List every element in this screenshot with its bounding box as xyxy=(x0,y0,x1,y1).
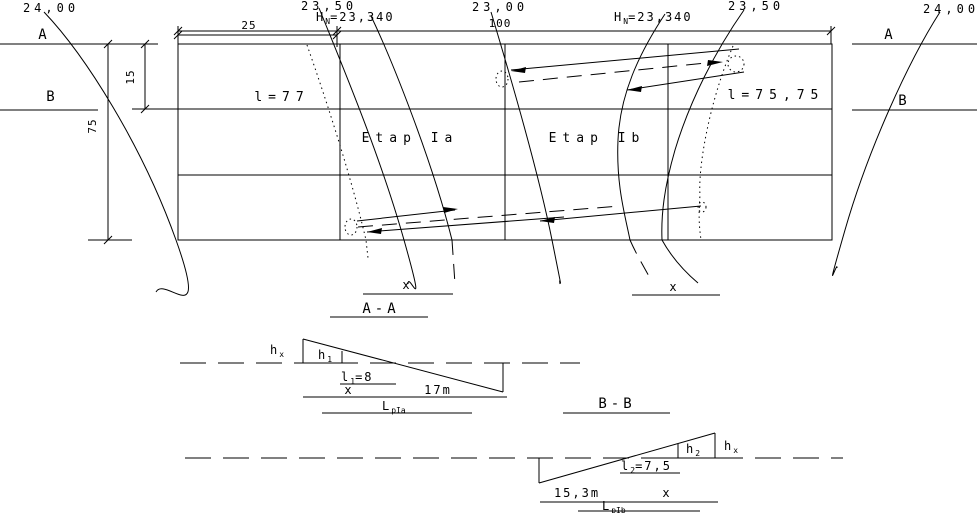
label-l2-bb: l2=7,5 xyxy=(621,459,672,475)
label-hx-aa: hx xyxy=(270,343,284,359)
label-hx-bb: hx xyxy=(724,439,738,455)
stage-label-etap-ib: Etap Ib xyxy=(549,131,646,146)
cell-label-l7575: l=75,75 xyxy=(728,88,825,103)
contour-label-2300: 23,00 xyxy=(472,0,528,14)
excavation-arrows-bottom xyxy=(345,202,706,235)
contour-label-24-far-right: 24,00 xyxy=(923,2,977,16)
label-h2-bb: h2 xyxy=(686,442,700,458)
section-marker-a-right: A xyxy=(884,27,893,43)
label-17m-aa: 17m xyxy=(424,383,452,397)
axis-x-right: x xyxy=(669,280,678,294)
contour-label-24-far-left: 24,00 xyxy=(23,1,79,15)
label-153m-bb: 15,3m xyxy=(554,486,600,500)
section-title-aa: A-A xyxy=(362,301,399,317)
cell-label-l77: l=77 xyxy=(254,90,309,105)
section-title-bb: B-B xyxy=(598,396,635,412)
section-bb: B-B h2 hx l2=7,5 15,3m x LpIb xyxy=(185,396,843,513)
label-h1-aa: h1 xyxy=(318,348,332,364)
label-x-bb: x xyxy=(662,486,671,500)
section-marker-a-left: A xyxy=(38,27,47,43)
cad-drawing: 24,00 23,50 HN=23,340 23,00 HN=23,340 23… xyxy=(0,0,977,513)
level-label-right: HN=23,340 xyxy=(614,10,693,26)
section-cut-lines xyxy=(0,44,977,110)
dim-label-100: 100 xyxy=(489,17,512,30)
contour-label-2350-right: 23,50 xyxy=(728,0,784,13)
stage-label-etap-ia: Etap Ia xyxy=(362,131,459,146)
dim-label-15: 15 xyxy=(124,69,137,84)
label-x-aa: x xyxy=(344,383,353,397)
section-aa: hx h1 l1=8 x 17m LpIa xyxy=(180,339,580,415)
label-lpib-bb: LpIb xyxy=(602,499,626,513)
dimension-lines xyxy=(88,26,835,244)
label-lpia-aa: LpIa xyxy=(382,399,406,415)
dim-label-25: 25 xyxy=(241,19,256,32)
dimension-ticks xyxy=(104,27,835,244)
dim-label-75: 75 xyxy=(86,118,99,133)
section-marker-b-left: B xyxy=(46,89,55,105)
section-marker-b-right: B xyxy=(898,93,907,109)
axis-x-left: x xyxy=(402,278,411,292)
